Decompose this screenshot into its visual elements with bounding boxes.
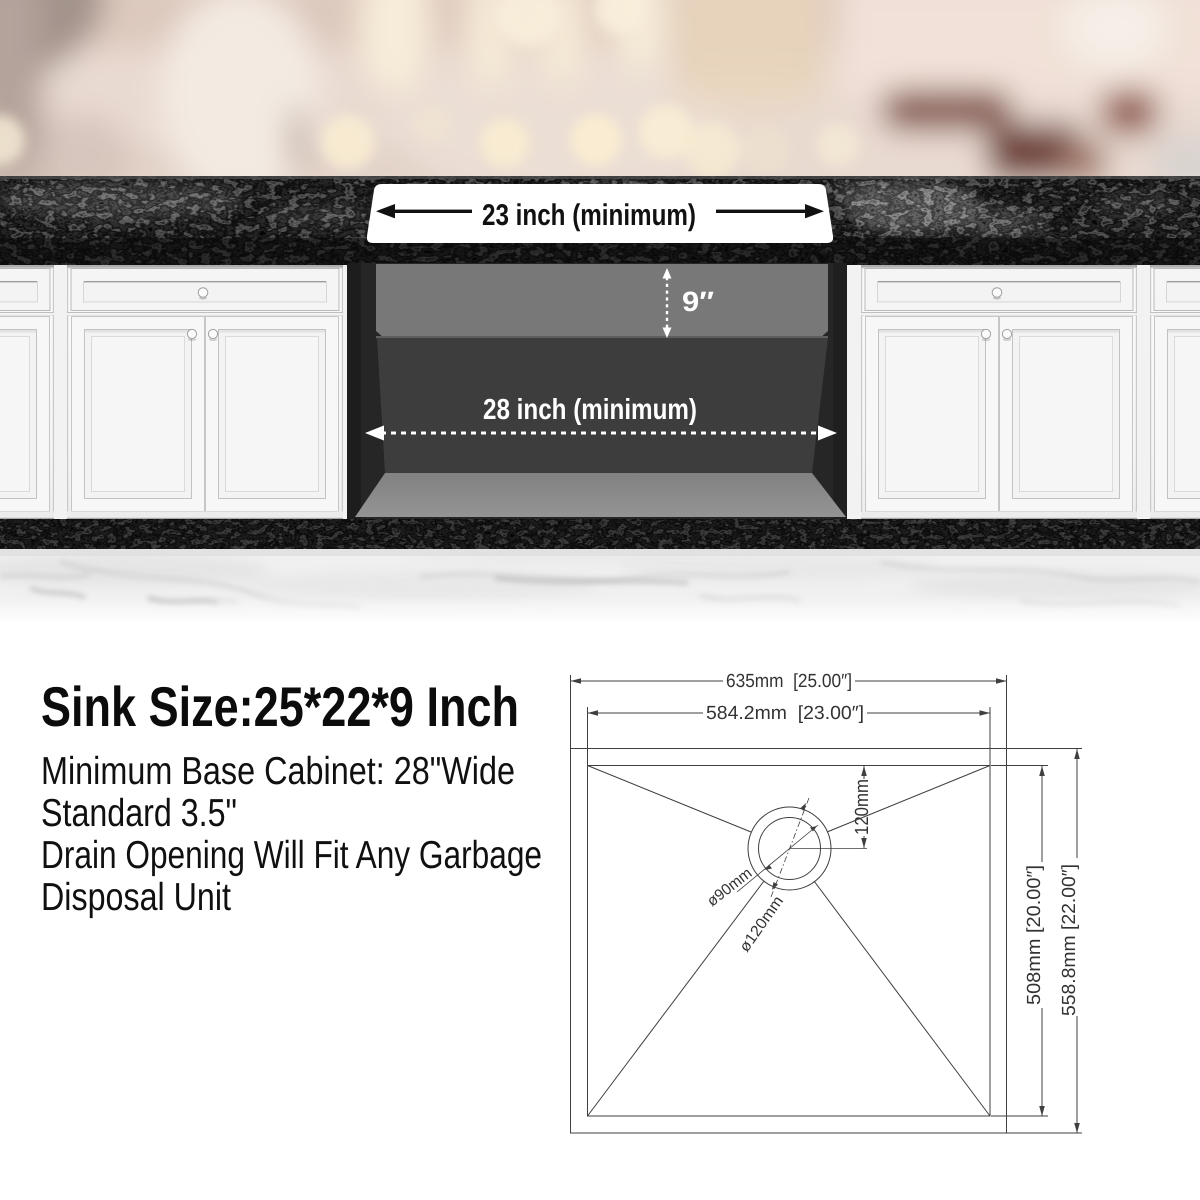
svg-text:508mm [20.00″]: 508mm [20.00″] [1024, 865, 1045, 1005]
svg-text:558.8mm [22.00″]: 558.8mm [22.00″] [1059, 864, 1080, 1016]
svg-text:584.2mm [23.00″]: 584.2mm [23.00″] [706, 703, 864, 724]
svg-text:120mm: 120mm [852, 779, 873, 835]
svg-text:Standard 3.5": Standard 3.5" [41, 792, 237, 835]
svg-text:23 inch (minimum): 23 inch (minimum) [482, 199, 696, 232]
svg-text:Minimum Base Cabinet: 28"Wide: Minimum Base Cabinet: 28"Wide [41, 750, 515, 793]
svg-text:9″: 9″ [682, 286, 714, 317]
svg-text:Disposal Unit: Disposal Unit [41, 876, 231, 919]
svg-text:28 inch (minimum): 28 inch (minimum) [483, 394, 697, 426]
svg-text:635mm [25.00″]: 635mm [25.00″] [726, 671, 852, 692]
svg-text:Drain Opening Will Fit Any Gar: Drain Opening Will Fit Any Garbage [41, 834, 542, 877]
svg-text:Sink Size:25*22*9 Inch: Sink Size:25*22*9 Inch [41, 675, 519, 738]
